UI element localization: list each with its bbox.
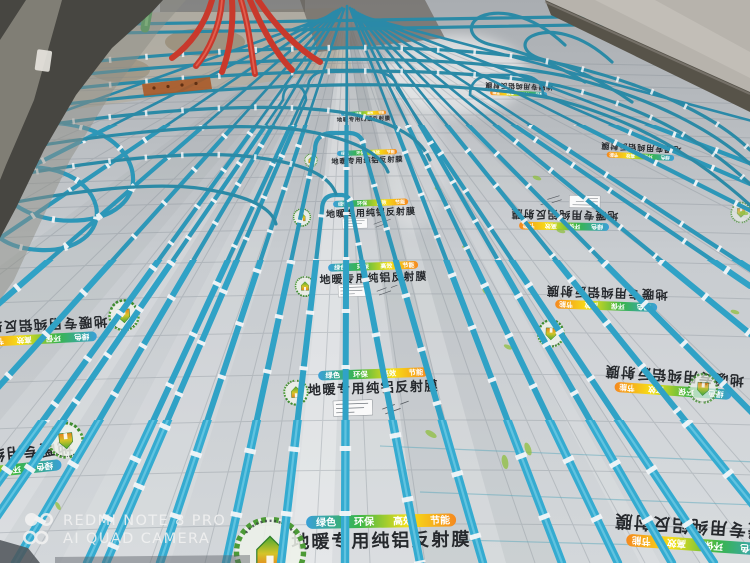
watermark-line1: REDMI NOTE 8 PRO: [63, 513, 226, 529]
wall-outlet-patch: [35, 49, 53, 72]
watermark-line2: AI QUAD CAMERA: [63, 531, 210, 547]
photo-floor-heating-installation: 绿色 环保 高效 节能 地暖专用纯铝反射膜: [0, 0, 750, 563]
